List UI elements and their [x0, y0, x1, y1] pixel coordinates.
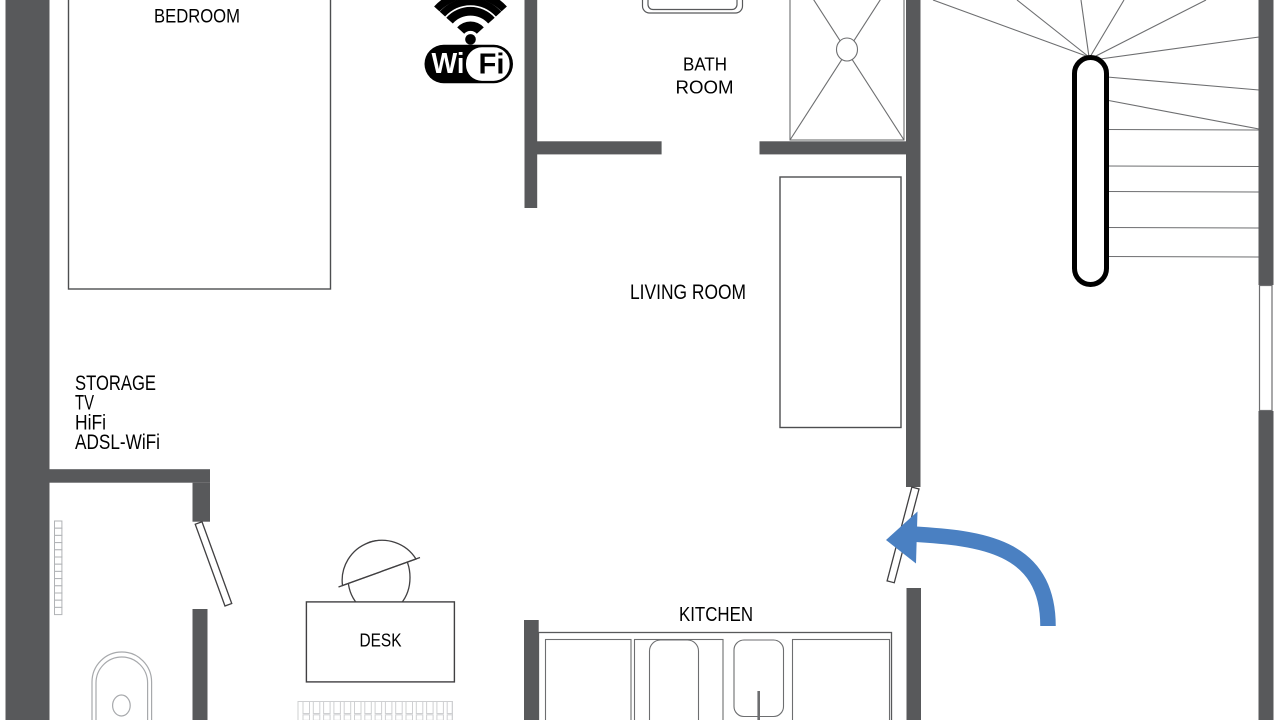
svg-text:ROOM: ROOM	[676, 77, 734, 98]
svg-text:ADSL-WiFi: ADSL-WiFi	[75, 431, 160, 454]
svg-text:LIVING ROOM: LIVING ROOM	[630, 280, 746, 304]
svg-text:BEDROOM: BEDROOM	[154, 7, 240, 28]
svg-text:BATH: BATH	[683, 54, 727, 75]
svg-text:DESK: DESK	[360, 630, 403, 651]
svg-text:KITCHEN: KITCHEN	[679, 603, 753, 626]
svg-text:Fi: Fi	[479, 48, 505, 80]
svg-text:Wi: Wi	[432, 48, 465, 80]
